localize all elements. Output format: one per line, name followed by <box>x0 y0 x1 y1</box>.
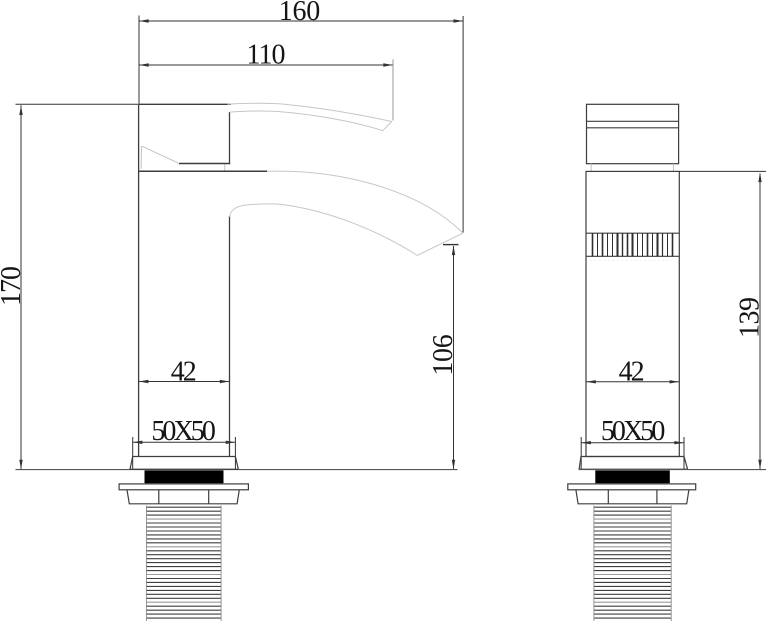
svg-text:110: 110 <box>247 39 286 70</box>
svg-text:50X50: 50X50 <box>151 416 216 447</box>
svg-text:50X50: 50X50 <box>601 416 666 447</box>
svg-text:160: 160 <box>279 0 321 27</box>
svg-text:106: 106 <box>428 334 459 376</box>
svg-text:170: 170 <box>0 266 27 306</box>
svg-text:42: 42 <box>619 357 645 388</box>
svg-text:139: 139 <box>735 297 766 338</box>
svg-text:42: 42 <box>171 357 197 388</box>
